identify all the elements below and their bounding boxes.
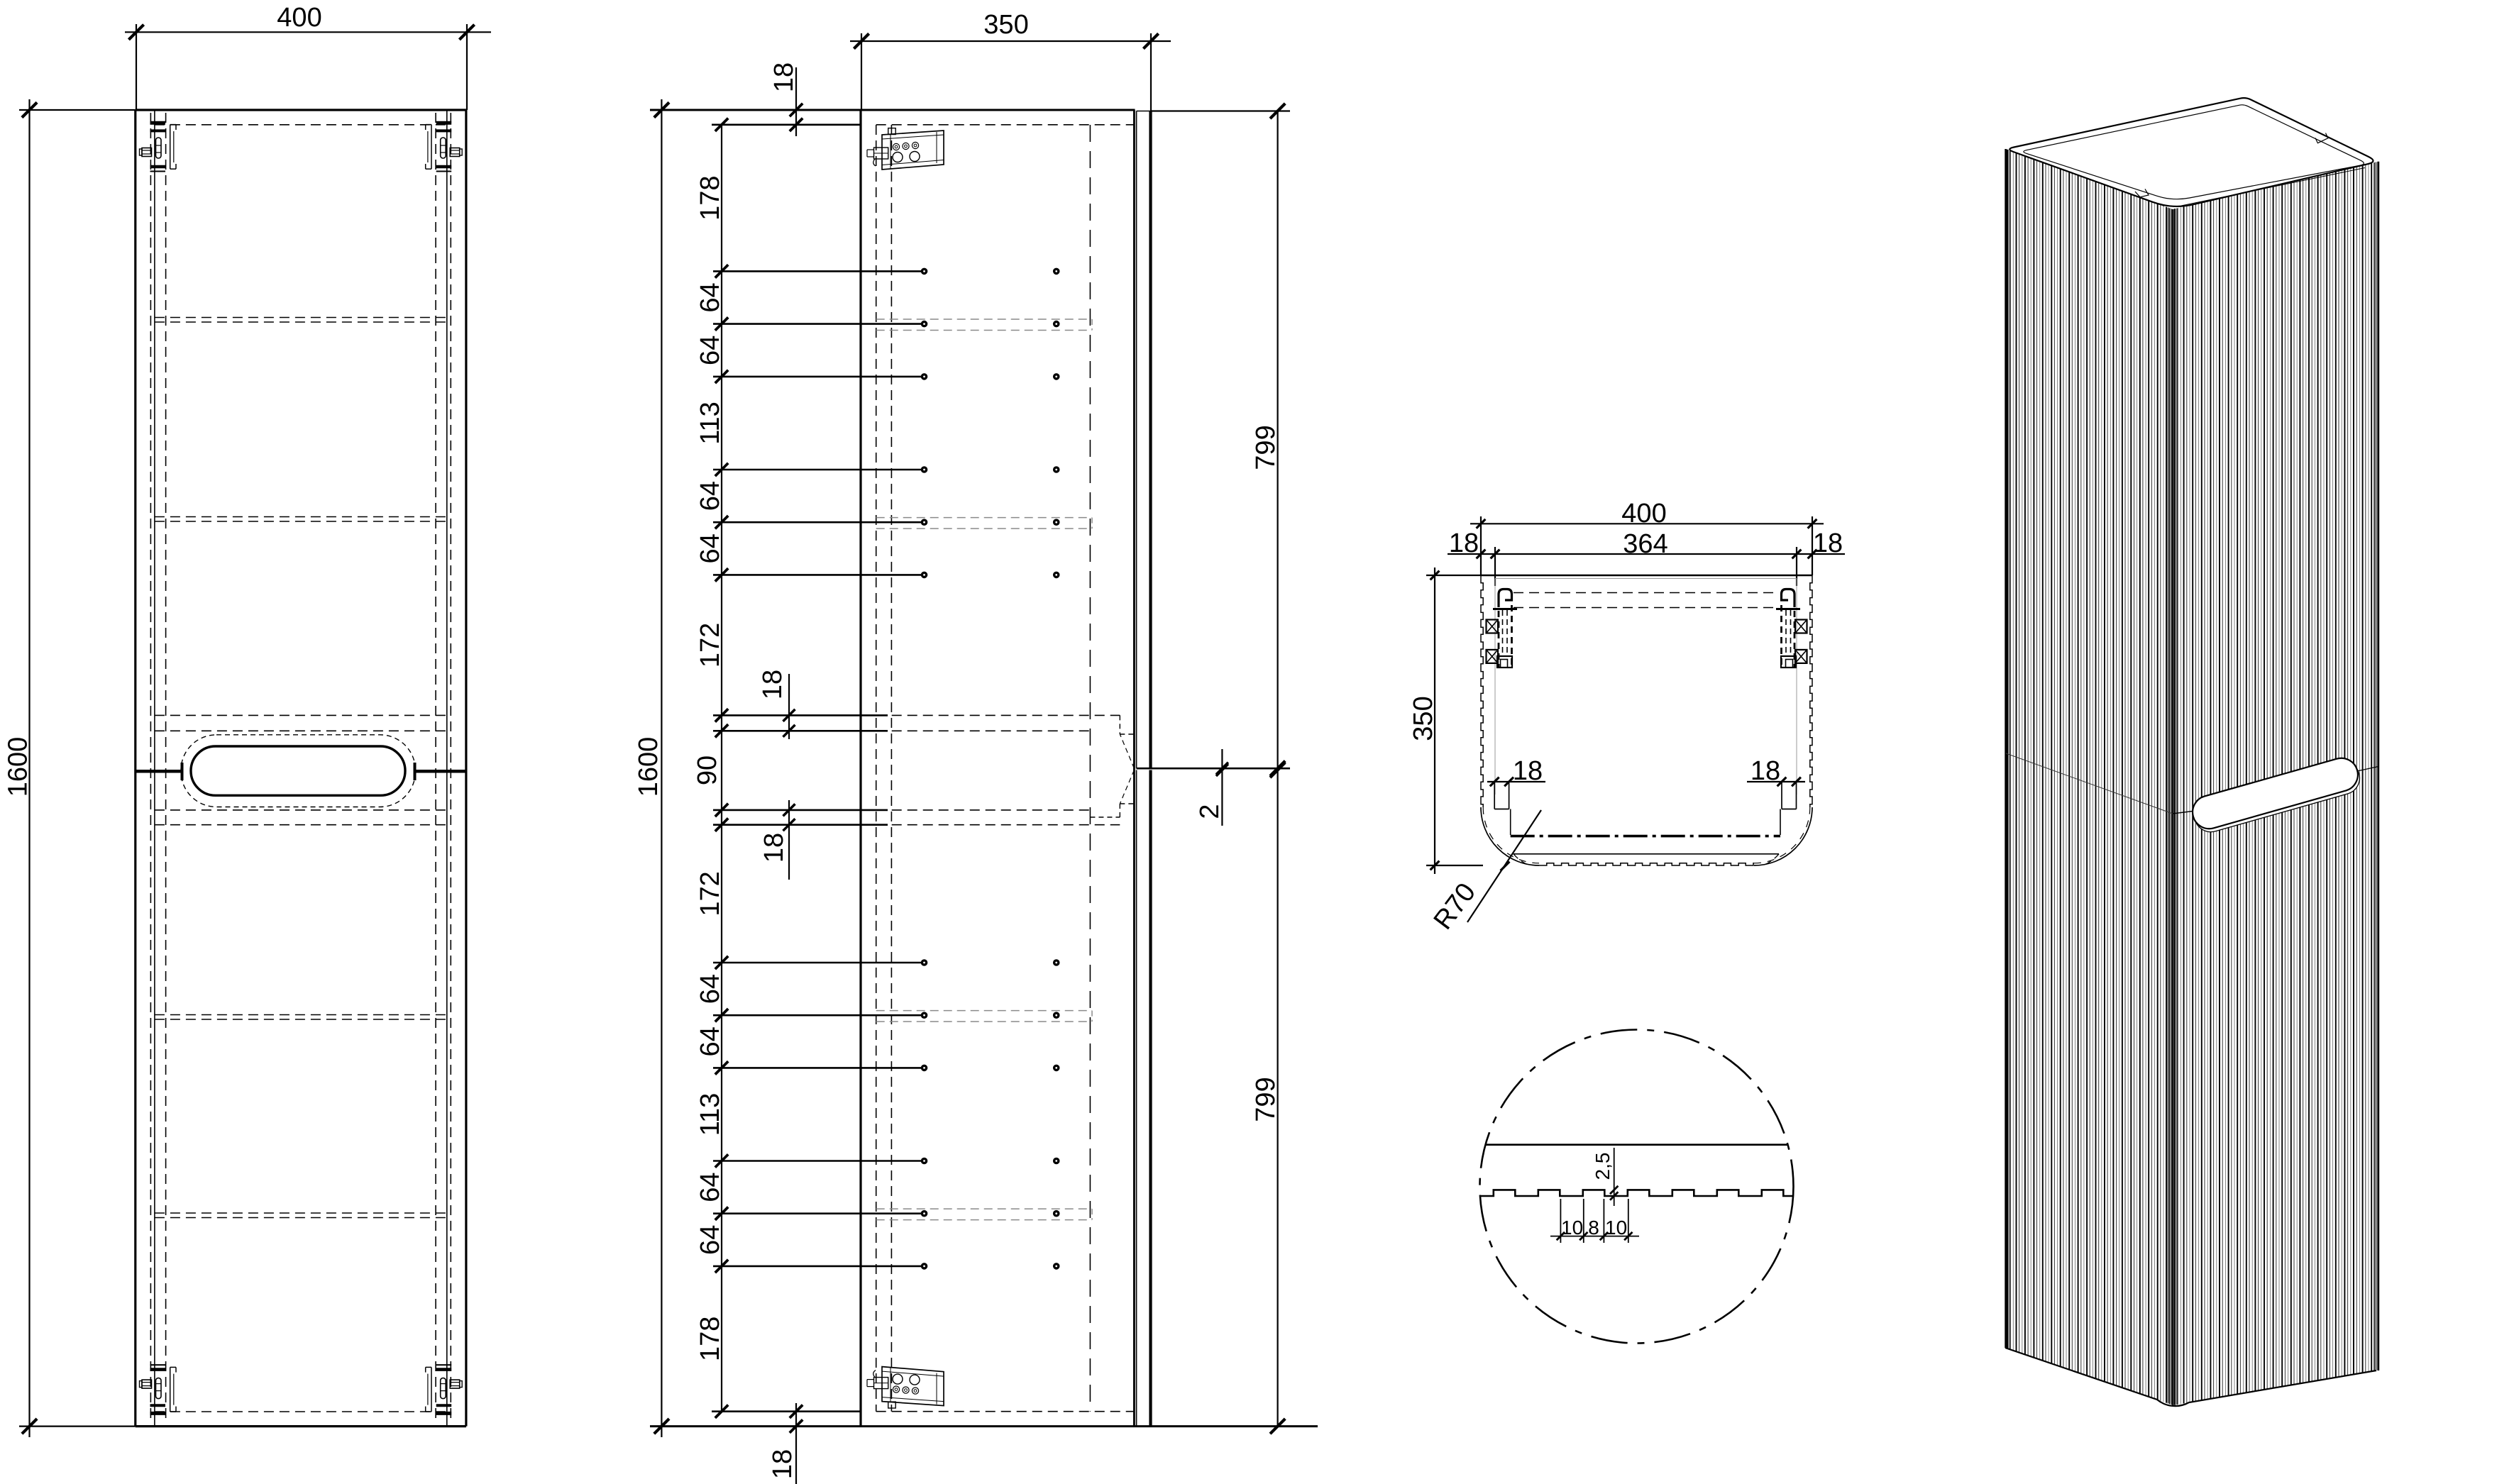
svg-text:18: 18 bbox=[1751, 756, 1780, 786]
svg-text:1600: 1600 bbox=[4, 737, 33, 797]
svg-text:64: 64 bbox=[695, 974, 725, 1004]
svg-text:64: 64 bbox=[695, 282, 725, 312]
svg-text:799: 799 bbox=[1251, 425, 1281, 470]
svg-text:400: 400 bbox=[1621, 499, 1666, 528]
svg-text:64: 64 bbox=[695, 533, 725, 563]
svg-text:178: 178 bbox=[695, 175, 725, 220]
svg-text:172: 172 bbox=[695, 623, 725, 668]
svg-text:64: 64 bbox=[695, 336, 725, 365]
svg-text:350: 350 bbox=[1408, 696, 1438, 741]
svg-text:64: 64 bbox=[695, 1026, 725, 1056]
svg-text:10: 10 bbox=[1561, 1217, 1583, 1239]
svg-text:18: 18 bbox=[1449, 528, 1479, 558]
svg-text:64: 64 bbox=[695, 481, 725, 511]
svg-text:2: 2 bbox=[1195, 804, 1225, 819]
svg-text:1600: 1600 bbox=[634, 737, 663, 797]
svg-text:18: 18 bbox=[759, 833, 789, 863]
svg-text:172: 172 bbox=[695, 871, 725, 916]
svg-text:113: 113 bbox=[695, 402, 725, 445]
svg-text:18: 18 bbox=[768, 1449, 798, 1479]
svg-text:400: 400 bbox=[277, 3, 321, 33]
svg-text:10: 10 bbox=[1605, 1217, 1627, 1239]
svg-text:113: 113 bbox=[695, 1093, 725, 1136]
svg-text:8: 8 bbox=[1588, 1217, 1599, 1239]
svg-text:2,5: 2,5 bbox=[1592, 1153, 1614, 1180]
svg-text:178: 178 bbox=[695, 1317, 725, 1361]
svg-text:18: 18 bbox=[758, 670, 788, 699]
svg-text:64: 64 bbox=[695, 1225, 725, 1255]
svg-text:799: 799 bbox=[1251, 1077, 1281, 1122]
svg-text:350: 350 bbox=[983, 10, 1028, 40]
svg-text:18: 18 bbox=[1513, 756, 1543, 786]
svg-text:64: 64 bbox=[695, 1172, 725, 1202]
svg-text:18: 18 bbox=[1813, 528, 1843, 558]
svg-text:364: 364 bbox=[1623, 529, 1667, 559]
svg-text:18: 18 bbox=[769, 62, 799, 92]
svg-text:90: 90 bbox=[693, 755, 722, 785]
